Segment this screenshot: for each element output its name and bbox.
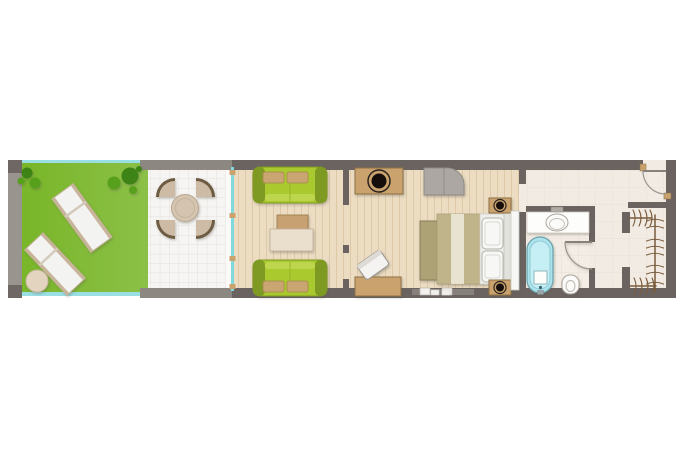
bush-icon [136,166,142,172]
bush-icon [30,178,41,189]
double-bed [437,211,513,287]
exterior-wall-right [666,160,676,298]
wall-cap-top [8,160,22,173]
partition-wall-a [343,170,349,205]
bathroom-wall-right-a [589,212,595,242]
terrace-wall-top [140,160,232,170]
lamp [496,202,504,210]
tub-faucet-icon [538,291,544,295]
floor-plan-image [0,0,680,453]
door-handle [230,170,236,175]
sofa-bottom [253,260,327,296]
glass-pane [231,167,234,291]
lamp [496,284,504,292]
desk [355,277,401,296]
partition-wall-stub [343,245,349,253]
bathroom-wall-right-b [589,268,595,288]
wall-cap-bottom [8,285,22,298]
slipper-icon [431,290,439,295]
sofa-top [253,167,327,203]
bathtub [527,237,553,295]
nightstand-bottom [489,280,511,295]
bed-blanket-stripe [451,214,464,284]
sofa-cushion [287,172,308,183]
entry-door-opening [643,160,666,170]
sofa-armrest [315,260,327,296]
bedroom-hall-wall-a [519,170,526,184]
bed-bench [420,221,437,280]
window-pane [420,288,430,295]
bedroom-door-opening [519,184,526,212]
bush-icon [122,168,139,185]
terrace-wall-bottom [140,288,232,298]
bush-icon [129,186,137,194]
bush-icon [108,177,121,190]
drain-icon [539,286,542,289]
sofa-cushion [263,281,284,292]
basin [372,174,387,189]
ottoman [26,270,48,292]
coffee-table-top [270,229,313,251]
toilet [562,275,579,294]
bathtub-seat [534,271,547,284]
wardrobe-panel [511,211,519,290]
gray-loveseat [424,168,464,195]
door-handle [230,256,236,261]
faucet-icon [551,207,563,212]
sofa-cushion [287,281,308,292]
door-handle [230,284,236,289]
floor-plan-svg [0,0,680,453]
bedroom-hall-wall-b [519,212,526,298]
glass-railing-bottom [22,292,148,296]
bush-icon [22,168,33,179]
sofa-cushion [263,172,284,183]
bush-icon [18,178,25,185]
slipper-icon [442,290,450,295]
console-table [355,168,403,194]
closet-wall-stub-a [622,212,630,233]
closet-wall-stub-b [622,267,630,288]
door-track [226,170,231,288]
partition-wall-b [343,279,349,288]
door-handle [230,213,236,218]
door-post [640,164,646,171]
closet-wall-top [628,202,676,208]
nightstand-top [489,198,511,213]
sofa-armrest [315,167,327,203]
